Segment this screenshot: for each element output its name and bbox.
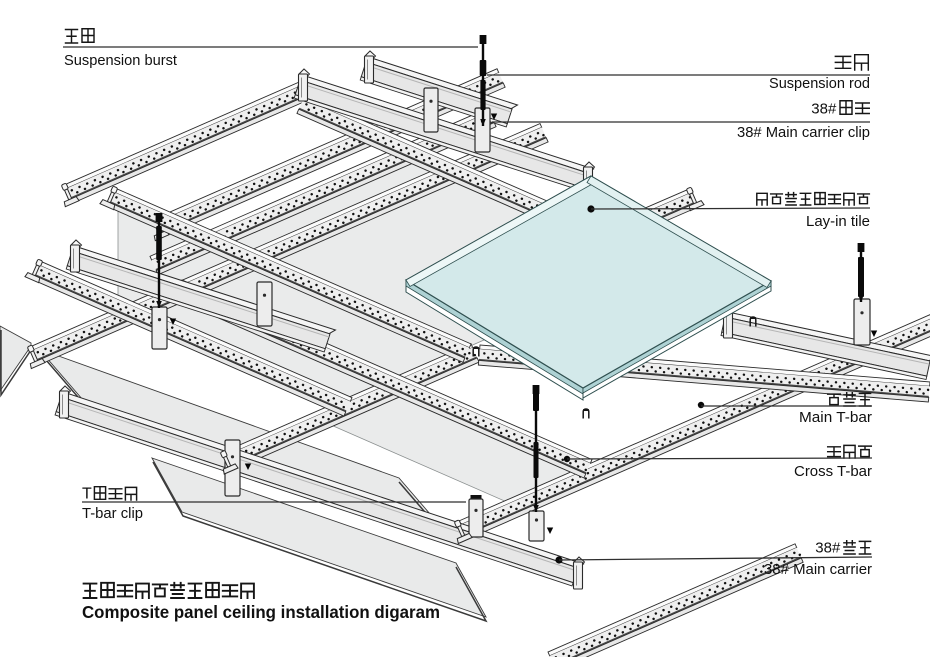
svg-text:Cross T-bar: Cross T-bar	[794, 463, 872, 480]
svg-text:Suspension rod: Suspension rod	[769, 75, 870, 92]
svg-text:Lay-in tile: Lay-in tile	[806, 213, 870, 230]
svg-text:T-bar clip: T-bar clip	[82, 505, 143, 522]
svg-text:T: T	[82, 486, 92, 503]
svg-text:38#: 38#	[811, 101, 837, 118]
svg-text:Suspension burst: Suspension burst	[64, 52, 178, 69]
svg-text:38# Main carrier: 38# Main carrier	[764, 561, 872, 578]
svg-text:38#: 38#	[815, 540, 841, 557]
svg-text:38# Main carrier clip: 38# Main carrier clip	[737, 124, 870, 141]
svg-text:Main T-bar: Main T-bar	[799, 409, 872, 426]
svg-text:Composite panel ceiling instal: Composite panel ceiling installation dig…	[82, 602, 440, 622]
